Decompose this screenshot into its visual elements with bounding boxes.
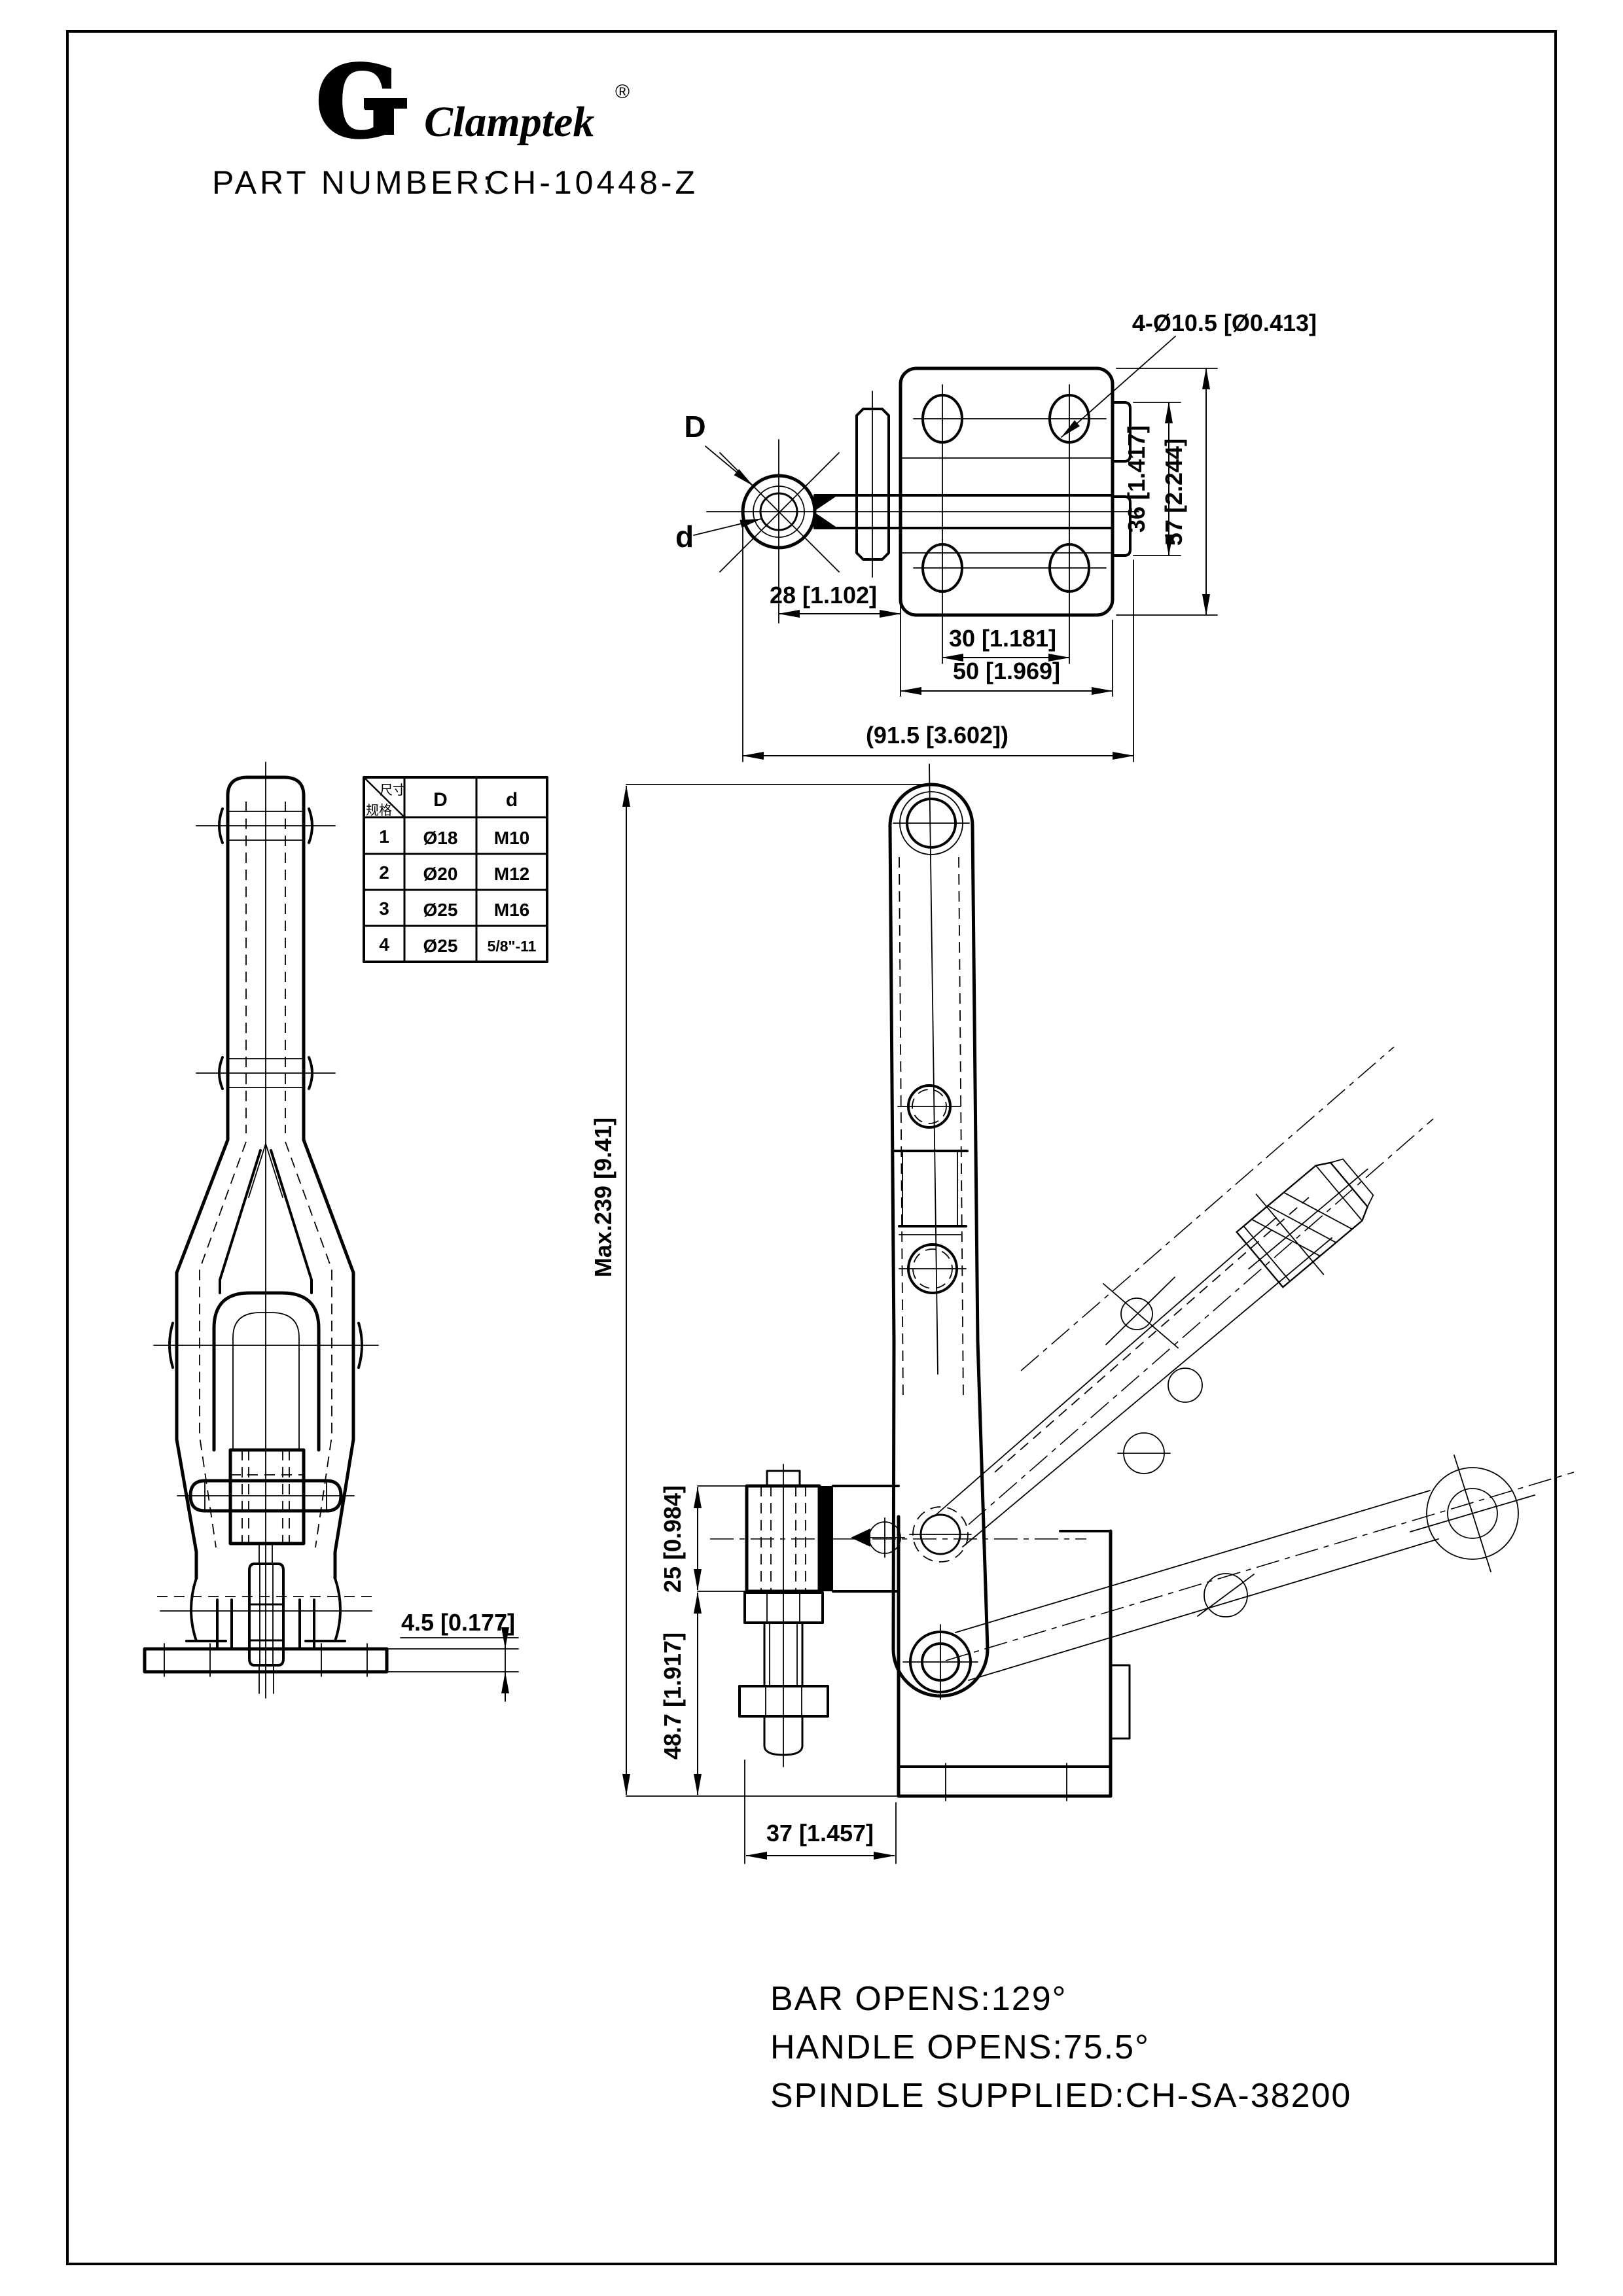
note-bar-opens: BAR OPENS:129° [770,1980,1067,2018]
callout-holes: 4-Ø10.5 [Ø0.413] [1132,309,1317,336]
svg-text:Ø18: Ø18 [423,828,458,848]
drawing-sheet: G Clamptek ® PART NUMBER: CH-10448-Z D d [0,0,1623,2296]
note-spindle-supplied: SPINDLE SUPPLIED:CH-SA-38200 [770,2077,1351,2115]
note-handle-opens: HANDLE OPENS:75.5° [770,2028,1150,2066]
logo-brand-text: Clamptek [424,98,594,146]
table-col-d: d [506,789,518,811]
svg-text:2: 2 [379,862,389,883]
notes: BAR OPENS:129° HANDLE OPENS:75.5° SPINDL… [770,1980,1351,2115]
logo-clamp-stem-icon [382,105,394,135]
part-number-value: CH-10448-Z [486,164,698,201]
table-col-D: D [433,789,448,811]
svg-text:5/8"-11: 5/8"-11 [488,938,537,955]
spec-table: 尺寸 规格 D d 1 Ø18 M10 2 Ø20 M12 3 Ø25 M16 … [364,777,547,962]
label-D: D [684,410,705,444]
dim-30-label: 30 [1.181] [949,625,1056,652]
svg-text:Ø25: Ø25 [423,936,458,956]
part-number-label: PART NUMBER: [212,164,495,201]
clamptek-logo: G Clamptek ® [316,44,630,160]
dim-36-label: 36 [1.417] [1123,425,1150,533]
svg-text:M10: M10 [494,828,529,848]
dim-37-label: 37 [1.457] [766,1820,874,1846]
dim-25-label: 25 [0.984] [659,1485,686,1593]
side-view: Max.239 [9.41] [590,764,1574,1863]
table-row: 3 Ø25 M16 [379,898,529,920]
label-d: d [675,520,694,554]
dim-487-label: 48.7 [1.917] [659,1633,686,1759]
svg-text:4: 4 [379,934,389,955]
front-view: 4.5 [0.177] [145,762,518,1701]
svg-text:Ø25: Ø25 [423,900,458,920]
svg-text:M12: M12 [494,864,529,884]
dim-45-label: 4.5 [0.177] [401,1609,515,1636]
part-number: PART NUMBER: CH-10448-Z [212,164,698,201]
dim-57-label: 57 [2.244] [1160,438,1187,546]
dim-28-label: 28 [1.102] [770,582,877,609]
dim-50-label: 50 [1.969] [953,658,1060,684]
dim-max239-label: Max.239 [9.41] [590,1118,616,1277]
table-row: 2 Ø20 M12 [379,862,529,884]
top-view: D d 4-Ø10.5 [Ø0.413] 36 [1.4 [675,309,1317,762]
dim-915-label: (91.5 [3.602]) [866,722,1008,749]
svg-text:Ø20: Ø20 [423,864,458,884]
table-row: 4 Ø25 5/8"-11 [379,934,536,956]
svg-text:3: 3 [379,898,389,919]
table-header-size: 尺寸 [380,783,406,798]
page-border [67,31,1556,2264]
logo-registered-mark: ® [615,81,630,103]
table-header-spec: 规格 [366,803,392,818]
svg-text:1: 1 [379,826,389,847]
table-row: 1 Ø18 M10 [379,826,529,848]
svg-text:M16: M16 [494,900,529,920]
